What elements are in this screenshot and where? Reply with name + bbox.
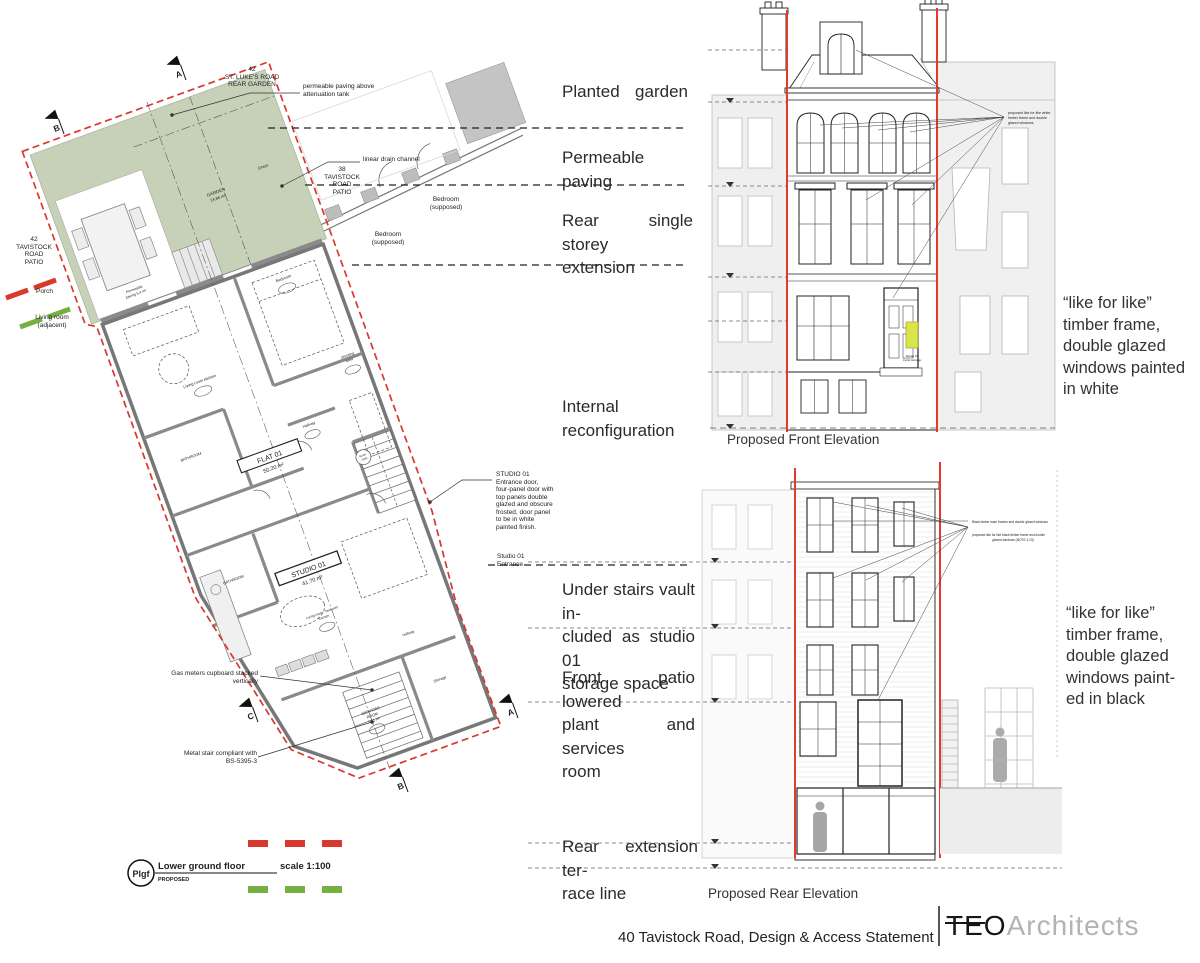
note-rear-extension: Rear single storey extension: [562, 209, 693, 280]
note-rear-windows: “like for like” timber frame, double gla…: [1066, 603, 1196, 711]
annotation-attenuation: permeable paving above attenuation tank: [303, 83, 398, 98]
logo-divider: [938, 906, 940, 946]
logo-architects: Architects: [1007, 910, 1140, 942]
label-porch: Porch: [36, 288, 53, 296]
drawing-layer: GARDEN 24.86 m² Grass Permeable paving 5…: [0, 0, 1200, 963]
annotation-gas-meters: Gas meters cupboard stacked vertically: [160, 670, 258, 685]
note-front-windows: “like for like” timber frame, double gla…: [1063, 293, 1195, 401]
note-front-patio: Front patio lowered plant and services r…: [562, 666, 695, 784]
logo-teo: TEO: [946, 910, 1007, 942]
annotation-studio-entrance: Studio 01 Entrance: [497, 553, 557, 568]
rear-note-2b: glazed windows (NOTE 4.13): [992, 538, 1033, 542]
annotation-metal-stair: Metal stair compliant with BS-5395-3: [175, 750, 257, 765]
label-st-lukes: 42 ST. LUKE'S ROAD REAR GARDEN: [196, 66, 308, 89]
rear-right-area: [940, 688, 1062, 854]
first-floor-windows: [795, 183, 934, 264]
cycle-storage-marker: [906, 322, 918, 348]
rear-elevation-caption: Proposed Rear Elevation: [708, 886, 858, 901]
section-b2-flag: B: [396, 780, 405, 791]
section-a-flag: A: [174, 68, 183, 79]
rear-note-2a: proposed like for like black timber fram…: [972, 533, 1045, 537]
legend: Plgf Lower ground floor PROPOSED scale 1…: [128, 840, 342, 893]
label-living-adjacent: Living room (adjacent): [22, 314, 82, 329]
front-note-1: proposed like for like white: [1008, 111, 1050, 115]
note-internal: Internal reconfiguration: [562, 395, 693, 442]
rear-note-1: Black timber sash frames and double glaz…: [972, 520, 1048, 524]
front-elevation-caption: Proposed Front Elevation: [727, 432, 879, 447]
section-a2-flag: A: [506, 706, 515, 717]
rear-glazed-doors: [797, 788, 935, 854]
section-b-flag: B: [52, 122, 61, 133]
legend-status: PROPOSED: [158, 877, 189, 883]
sheet-title: 40 Tavistock Road, Design & Access State…: [618, 929, 934, 946]
scaffold: [985, 688, 1033, 788]
label-42-tavistock: 42 TAVISTOCK ROAD PATIO: [10, 236, 58, 266]
annotation-drain: linear drain channel: [363, 156, 420, 164]
drawing-sheet: GARDEN 24.86 m² Grass Permeable paving 5…: [0, 0, 1200, 963]
logo-crossbar: [945, 922, 985, 924]
note-planted-garden: Planted garden: [562, 80, 688, 104]
legend-tag: Plgf: [133, 869, 151, 879]
front-note-3: glazed windows: [1008, 121, 1034, 125]
note-permeable-paving: Permeable paving: [562, 146, 685, 193]
legend-floor: Lower ground floor: [158, 861, 245, 872]
dormer: [820, 22, 862, 74]
front-elevation: Studio 01 Cycle storage: [708, 0, 1055, 432]
annotation-studio-door: STUDIO 01 Entrance door, four-panel door…: [496, 471, 571, 531]
rear-left-neighbour: [702, 490, 795, 858]
label-bedroom-supposed-1: Bedroom (supposed): [420, 196, 472, 211]
cycle-label-2: Cycle storage: [903, 358, 922, 362]
teo-architects-logo: TEO Architects: [938, 905, 1140, 947]
rear-yard-ground: [940, 788, 1062, 854]
legend-scale: scale 1:100: [280, 861, 331, 872]
section-c-flag: C: [246, 710, 255, 721]
front-note-2: timber frame and double: [1008, 116, 1047, 120]
rear-facade: [791, 482, 939, 860]
label-bedroom-supposed-2: Bedroom (supposed): [362, 231, 414, 246]
front-left-neighbour: [712, 95, 787, 430]
label-38-tavistock: 38 TAVISTOCK ROAD PATIO: [318, 166, 366, 196]
neighbour-wall: [285, 46, 537, 231]
note-rear-terrace: Rear extension ter- race line: [562, 835, 698, 906]
